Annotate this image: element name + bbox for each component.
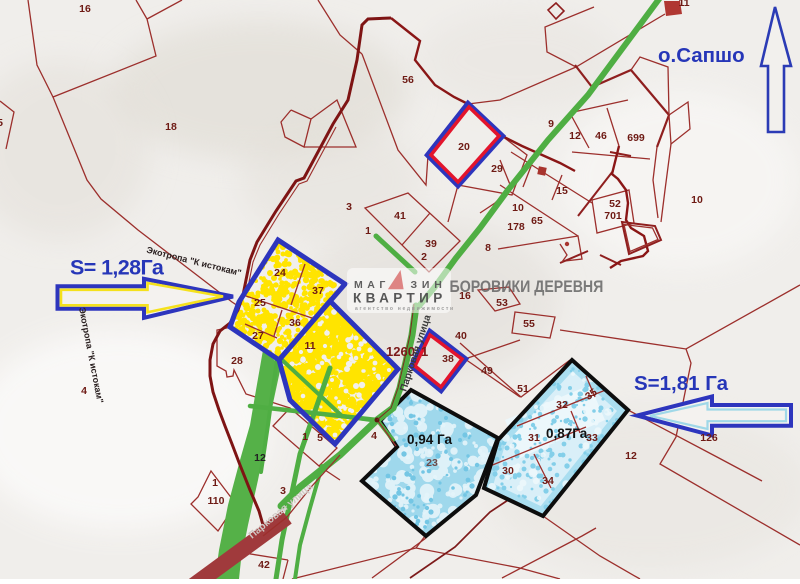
- svg-text:18: 18: [165, 121, 177, 133]
- svg-text:о.Сапшо: о.Сапшо: [658, 44, 745, 67]
- svg-text:10: 10: [512, 202, 524, 214]
- svg-text:53: 53: [496, 297, 508, 309]
- svg-text:31: 31: [528, 432, 540, 444]
- svg-text:1: 1: [302, 431, 308, 443]
- svg-text:51: 51: [517, 383, 529, 395]
- svg-text:12: 12: [625, 450, 637, 462]
- svg-text:34: 34: [542, 475, 554, 487]
- svg-text:23: 23: [426, 457, 438, 469]
- svg-text:4: 4: [371, 430, 377, 442]
- svg-text:5: 5: [0, 117, 3, 129]
- svg-text:12: 12: [254, 452, 266, 464]
- svg-text:3: 3: [280, 485, 286, 497]
- svg-text:701: 701: [604, 210, 622, 222]
- svg-text:40: 40: [455, 330, 467, 342]
- svg-text:126: 126: [700, 432, 718, 444]
- svg-text:37: 37: [312, 285, 324, 297]
- svg-text:10: 10: [691, 194, 703, 206]
- svg-text:3: 3: [346, 201, 352, 213]
- svg-text:110: 110: [208, 495, 225, 507]
- svg-text:20: 20: [458, 141, 470, 153]
- svg-text:46: 46: [595, 130, 607, 142]
- svg-text:0,87Га: 0,87Га: [546, 426, 588, 441]
- svg-text:24: 24: [274, 267, 286, 279]
- svg-text:2: 2: [421, 251, 427, 263]
- svg-text:1: 1: [365, 225, 371, 237]
- svg-text:ЗИН: ЗИН: [411, 279, 447, 291]
- svg-text:42: 42: [258, 559, 270, 571]
- svg-text:41: 41: [394, 210, 406, 222]
- svg-text:МАГ: МАГ: [354, 279, 390, 291]
- svg-text:8: 8: [485, 242, 491, 254]
- svg-text:16: 16: [459, 290, 471, 302]
- svg-text:4: 4: [81, 385, 87, 397]
- svg-text:32: 32: [556, 399, 568, 411]
- svg-text:S= 1,28Га: S= 1,28Га: [70, 256, 165, 280]
- svg-text:25: 25: [254, 297, 266, 309]
- svg-text:28: 28: [231, 355, 243, 367]
- svg-text:БОРОВИКИ ДЕРЕВНЯ: БОРОВИКИ ДЕРЕВНЯ: [450, 278, 604, 296]
- svg-text:5: 5: [317, 432, 323, 444]
- svg-text:16: 16: [79, 3, 91, 15]
- svg-text:27: 27: [252, 330, 264, 342]
- svg-text:699: 699: [627, 132, 645, 144]
- svg-text:S=1,81 Га: S=1,81 Га: [634, 372, 729, 395]
- svg-text:11: 11: [678, 0, 689, 9]
- svg-text:39: 39: [425, 238, 437, 250]
- svg-text:65: 65: [531, 215, 543, 227]
- svg-text:0,94 Га: 0,94 Га: [407, 432, 453, 447]
- svg-text:56: 56: [402, 74, 414, 86]
- svg-text:29: 29: [491, 163, 503, 175]
- svg-text:11: 11: [304, 340, 315, 352]
- svg-text:38: 38: [442, 353, 454, 365]
- svg-text:15: 15: [556, 185, 568, 197]
- svg-text:9: 9: [548, 118, 554, 130]
- svg-text:12: 12: [569, 130, 581, 142]
- svg-text:33: 33: [586, 432, 598, 444]
- svg-text:1: 1: [212, 477, 218, 489]
- svg-text:КВАРТИР: КВАРТИР: [353, 291, 447, 306]
- svg-text:55: 55: [523, 318, 535, 330]
- svg-text:52: 52: [609, 198, 621, 210]
- svg-text:49: 49: [481, 365, 493, 377]
- svg-text:36: 36: [289, 317, 301, 329]
- svg-text:30: 30: [502, 465, 514, 477]
- svg-text:агентство недвижимости: агентство недвижимости: [355, 306, 455, 312]
- svg-text:178: 178: [507, 221, 525, 233]
